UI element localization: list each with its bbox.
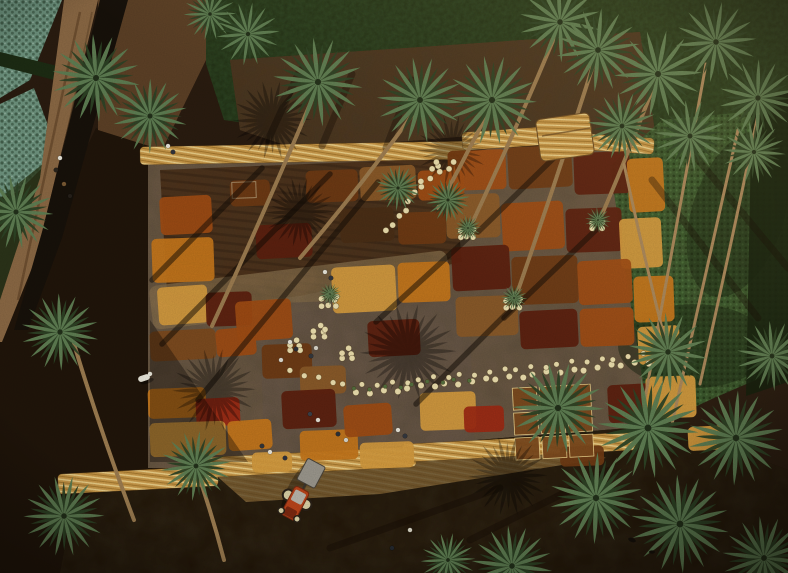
scene-canvas [0, 0, 788, 573]
aerial-photo-date-drying-yard [0, 0, 788, 573]
vignette-overlay [0, 0, 788, 573]
